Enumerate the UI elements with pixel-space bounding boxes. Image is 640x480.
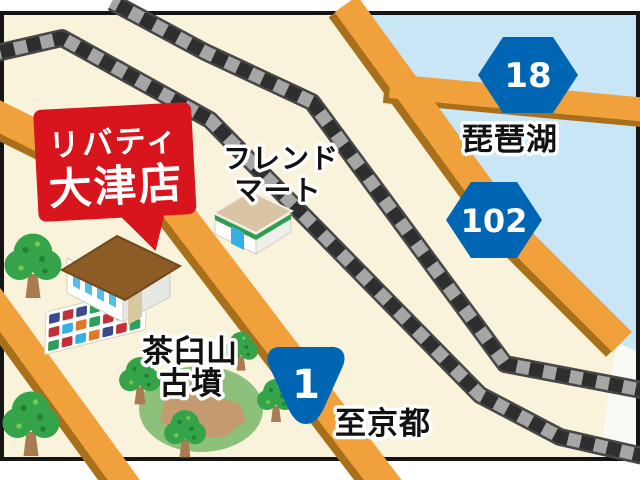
route-1-number: 1 xyxy=(292,362,320,408)
friend-mart-label-line1: フレンド xyxy=(223,142,339,175)
store-bubble-line1: リバティ xyxy=(48,122,180,165)
store-bubble-line2: 大津店 xyxy=(47,158,184,215)
kofun-label-line1: 茶臼山 xyxy=(142,334,238,370)
route-18-number: 18 xyxy=(504,56,551,96)
friend-mart-label-line2: マート xyxy=(234,174,321,207)
kofun-label-line2: 古墳 xyxy=(159,366,223,402)
map-canvas: 18 102 1 琵琶湖 フレンド マート 茶臼山 古墳 至京都 リバティ 大津… xyxy=(0,0,640,480)
route-102-number: 102 xyxy=(461,202,528,240)
lake-label: 琵琶湖 xyxy=(462,122,558,158)
to-kyoto-label: 至京都 xyxy=(335,406,431,442)
map-screenshot: 18 102 1 琵琶湖 フレンド マート 茶臼山 古墳 至京都 リバティ 大津… xyxy=(0,0,640,480)
